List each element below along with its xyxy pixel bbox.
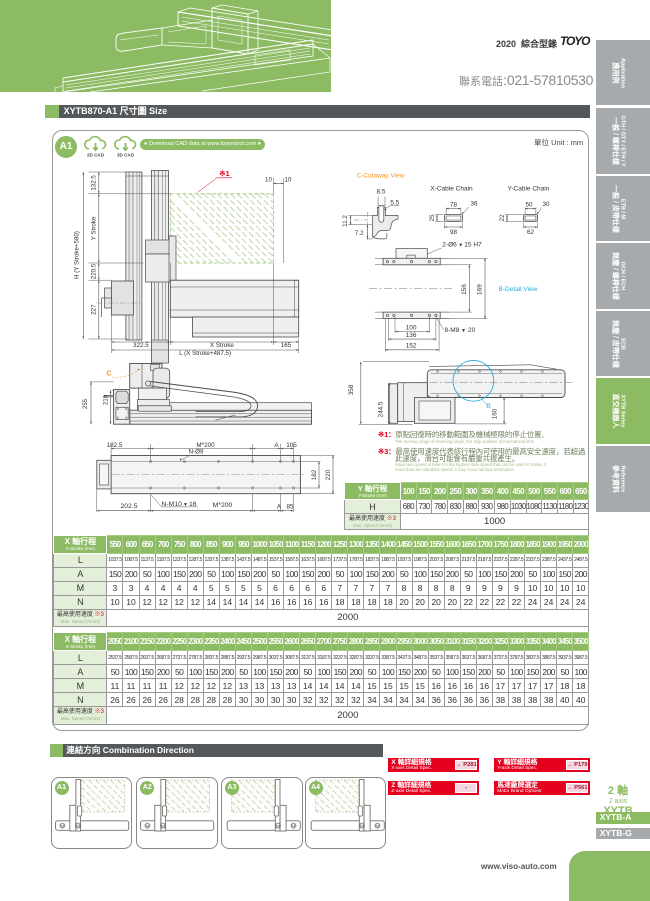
svg-text:22: 22 bbox=[499, 214, 506, 222]
svg-text:M: M bbox=[276, 823, 280, 829]
svg-text:M: M bbox=[375, 823, 379, 829]
svg-text:20: 20 bbox=[468, 327, 476, 334]
svg-text:M: M bbox=[291, 823, 295, 829]
svg-text:※1: ※1 bbox=[219, 169, 229, 178]
svg-text:A: A bbox=[274, 442, 279, 449]
svg-text:100: 100 bbox=[405, 324, 416, 331]
svg-text:11.2: 11.2 bbox=[342, 215, 349, 227]
svg-text:C: C bbox=[106, 371, 111, 378]
svg-text:X Stroke: X Stroke bbox=[210, 342, 234, 349]
svg-text:160: 160 bbox=[491, 408, 498, 419]
svg-text:L (X Stroke+487.5): L (X Stroke+487.5) bbox=[179, 350, 231, 357]
svg-text:244.5: 244.5 bbox=[377, 401, 384, 417]
svg-text:136: 136 bbox=[405, 332, 416, 339]
svg-text:152: 152 bbox=[405, 343, 416, 350]
svg-text:M: M bbox=[360, 823, 364, 829]
svg-text:B-Detail View: B-Detail View bbox=[498, 286, 537, 293]
svg-text:10: 10 bbox=[284, 177, 291, 184]
svg-text:220: 220 bbox=[325, 469, 332, 480]
svg-text:2-Ø6: 2-Ø6 bbox=[442, 242, 457, 249]
svg-text:210: 210 bbox=[103, 394, 109, 405]
svg-text:25: 25 bbox=[429, 214, 436, 222]
svg-text:A: A bbox=[276, 504, 281, 511]
svg-text:169: 169 bbox=[476, 284, 483, 295]
svg-text:5.5: 5.5 bbox=[390, 199, 399, 206]
svg-text:H (Y Stroke+580): H (Y Stroke+580) bbox=[73, 231, 80, 279]
svg-text:165: 165 bbox=[280, 342, 291, 349]
svg-text:M: M bbox=[161, 823, 165, 829]
svg-text:62: 62 bbox=[526, 229, 534, 236]
svg-text:182: 182 bbox=[311, 469, 318, 480]
svg-text:M*200: M*200 bbox=[212, 502, 232, 509]
svg-text:220.5: 220.5 bbox=[90, 263, 97, 279]
svg-text:C-Cutaway View: C-Cutaway View bbox=[356, 173, 404, 180]
svg-text:▼: ▼ bbox=[461, 328, 466, 334]
svg-text:132.5: 132.5 bbox=[90, 175, 97, 191]
svg-text:30: 30 bbox=[542, 201, 550, 208]
svg-text:227: 227 bbox=[90, 304, 97, 315]
svg-text:7.2: 7.2 bbox=[354, 230, 363, 237]
svg-text:358: 358 bbox=[348, 384, 355, 395]
svg-text:8-M8: 8-M8 bbox=[444, 327, 459, 334]
svg-text:50: 50 bbox=[525, 202, 533, 209]
svg-text:M: M bbox=[75, 823, 79, 829]
svg-text:156: 156 bbox=[460, 284, 467, 295]
svg-text:M: M bbox=[60, 823, 64, 829]
svg-text:M: M bbox=[146, 823, 150, 829]
svg-text:Y-Cable Chain: Y-Cable Chain bbox=[507, 186, 549, 193]
svg-text:▼: ▼ bbox=[458, 243, 463, 249]
svg-text:255: 255 bbox=[83, 398, 89, 409]
svg-text:78: 78 bbox=[449, 202, 457, 209]
svg-text:182.5: 182.5 bbox=[106, 442, 122, 449]
svg-text:8.5: 8.5 bbox=[376, 189, 385, 196]
svg-text:N-Ø9: N-Ø9 bbox=[188, 449, 204, 456]
svg-text:202.5: 202.5 bbox=[120, 503, 137, 510]
svg-text:10: 10 bbox=[265, 177, 272, 184]
svg-text:X-Cable Chain: X-Cable Chain bbox=[430, 186, 473, 193]
svg-text:98: 98 bbox=[449, 229, 457, 236]
svg-text:Y Stroke: Y Stroke bbox=[90, 216, 97, 240]
svg-text:85: 85 bbox=[286, 504, 294, 511]
svg-text:36: 36 bbox=[470, 201, 478, 208]
svg-text:15 H7: 15 H7 bbox=[464, 242, 482, 249]
svg-text:105: 105 bbox=[286, 442, 297, 449]
svg-text:B: B bbox=[486, 403, 490, 410]
svg-text:322.5: 322.5 bbox=[133, 342, 149, 349]
